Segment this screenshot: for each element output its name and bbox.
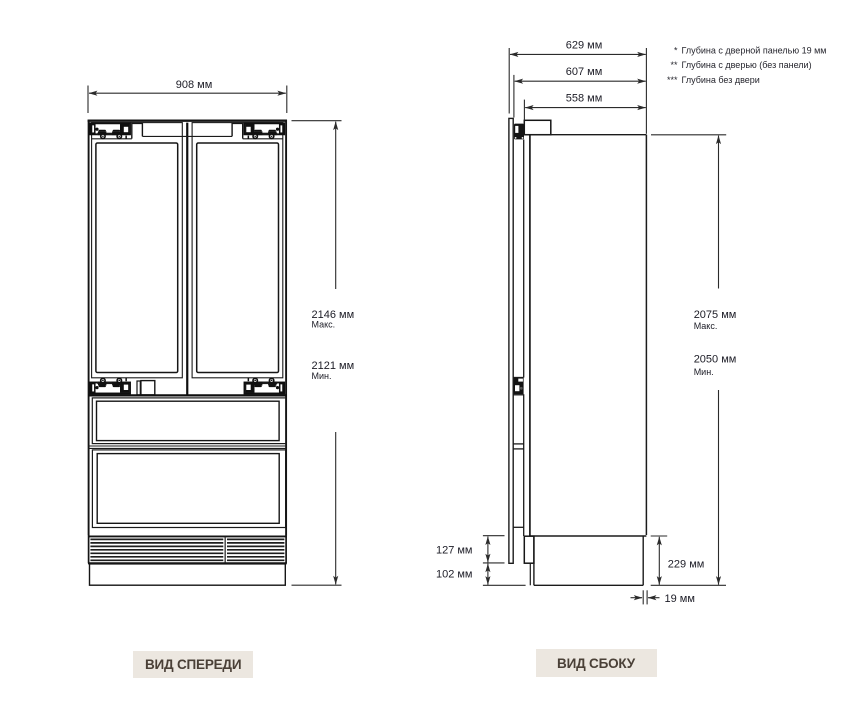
svg-text:Макс.: Макс. [312,320,336,330]
svg-text:Макс.: Макс. [694,321,718,331]
svg-text:102 мм: 102 мм [436,569,473,581]
svg-text:629 мм: 629 мм [566,40,603,52]
svg-text:908 мм: 908 мм [176,79,213,91]
svg-text:**: ** [670,60,678,70]
svg-text:Мин.: Мин. [312,371,332,381]
svg-text:Глубина с дверью (без панели): Глубина с дверью (без панели) [682,60,812,70]
svg-text:607 мм: 607 мм [566,66,603,78]
svg-text:229 мм: 229 мм [668,558,705,570]
svg-text:*: * [674,46,678,56]
svg-text:2075 мм: 2075 мм [694,309,737,321]
svg-text:558 мм: 558 мм [566,93,603,105]
svg-text:127 мм: 127 мм [436,545,473,557]
svg-text:Глубина без двери: Глубина без двери [682,75,760,85]
svg-text:2050 мм: 2050 мм [694,354,737,366]
svg-text:***: *** [667,75,678,85]
svg-text:Мин.: Мин. [694,367,714,377]
svg-text:Глубина с дверной панелью 19 м: Глубина с дверной панелью 19 мм [682,46,827,56]
svg-text:19 мм: 19 мм [665,593,695,605]
